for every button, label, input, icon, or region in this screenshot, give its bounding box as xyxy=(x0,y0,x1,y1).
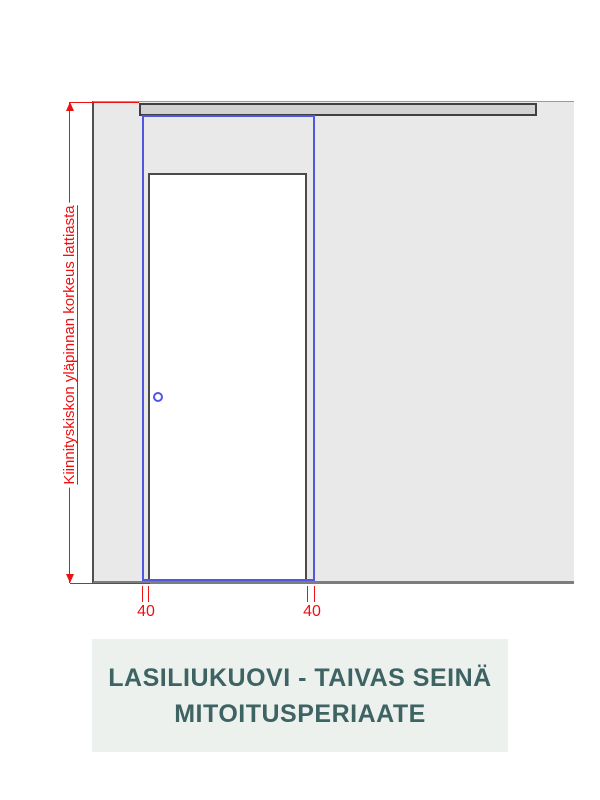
overlap-left-tick-b xyxy=(148,586,149,602)
page-title-line-2: MITOITUSPERIAATE xyxy=(174,697,426,731)
title-block: LASILIUKUOVI - TAIVAS SEINÄ MITOITUSPERI… xyxy=(92,639,508,752)
glass-panel-outline xyxy=(142,115,315,581)
overlap-left-tick-a xyxy=(142,586,143,602)
technical-drawing: Kiinnityskiskon yläpinnan korkeus lattia… xyxy=(0,0,600,800)
dimension-arrow-up-icon xyxy=(66,102,74,111)
page-title-line-1: LASILIUKUOVI - TAIVAS SEINÄ xyxy=(108,661,491,695)
height-dimension-bottom-tick xyxy=(70,583,150,584)
overlap-left-dimension-value: 40 xyxy=(137,602,155,621)
height-dimension-label: Kiinnityskiskon yläpinnan korkeus lattia… xyxy=(61,202,79,487)
overlap-right-tick-a xyxy=(307,586,308,602)
dimension-arrow-down-icon xyxy=(66,574,74,583)
overlap-right-tick-b xyxy=(314,586,315,602)
overlap-right-dimension-value: 40 xyxy=(303,602,321,621)
handle-knob-icon xyxy=(153,392,163,402)
height-dimension-top-tick xyxy=(70,102,139,103)
